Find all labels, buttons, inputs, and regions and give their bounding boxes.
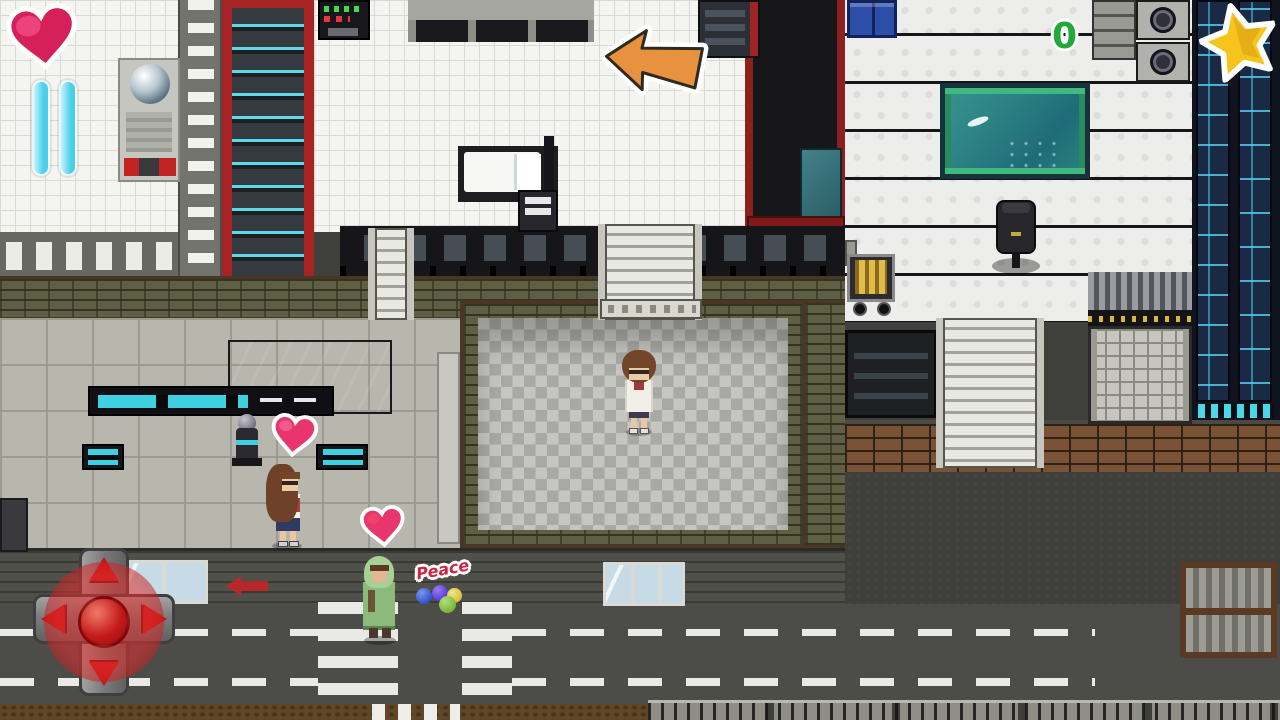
counter-indicator: 0 (1052, 16, 1077, 57)
crosswalk-south (372, 704, 460, 720)
nightstand (518, 190, 558, 232)
cabinet-stripes (88, 449, 118, 465)
hair-fringe (627, 362, 651, 368)
machine-red-edge (750, 2, 758, 56)
emblem-icon (1150, 7, 1176, 33)
pause-bar (32, 80, 50, 176)
machine-slots (705, 10, 745, 48)
machine-slot-band (340, 226, 845, 278)
cyan-cabinet (316, 444, 368, 470)
dark-slab (0, 498, 28, 552)
emblem-machines (1136, 0, 1190, 82)
graffiti-arrow (226, 576, 270, 596)
chair-headrest (1002, 203, 1030, 213)
game-viewport: Peace 0 (0, 0, 1280, 720)
panel-slot (328, 28, 358, 36)
door-mullion (631, 565, 635, 603)
balloon-blue (416, 588, 432, 604)
face (372, 570, 387, 582)
white-tick (294, 398, 316, 402)
hair-fringe (370, 565, 389, 571)
lane-dashes (512, 678, 1095, 686)
character-green-cloaked-figure[interactable] (358, 556, 402, 644)
mirror-sphere (130, 64, 170, 104)
counter-base (408, 20, 594, 42)
wooden-crate (1180, 562, 1277, 658)
hydrant-robot (230, 414, 264, 466)
pillow (514, 154, 541, 190)
staircase-small[interactable] (368, 228, 414, 320)
cyan-cabinet (82, 444, 124, 470)
ladder-column (178, 0, 222, 322)
lane-dashes (512, 629, 1095, 636)
drawer (525, 197, 551, 204)
crate-crossbar (1186, 608, 1271, 615)
door-mullion (658, 565, 662, 603)
emblem-icon (1150, 49, 1176, 75)
road (0, 604, 1280, 712)
bubbles (1005, 138, 1065, 168)
office-chair (988, 200, 1044, 276)
counter-surface (408, 0, 594, 22)
green-indicator-row (324, 6, 364, 12)
shoe (289, 541, 299, 547)
supply-cart (845, 240, 897, 314)
red-lights (124, 158, 176, 176)
graffiti-arrow-head (226, 576, 241, 596)
plaza-sign (600, 299, 702, 319)
server-rows (854, 339, 928, 409)
pause-button[interactable] (26, 76, 86, 180)
escalator-column (222, 0, 314, 296)
drawer (525, 208, 551, 215)
character-lab-coat-girl[interactable] (620, 350, 658, 438)
hint-arrow (597, 19, 710, 107)
grid-machine (1088, 326, 1192, 424)
cart-cargo (855, 260, 887, 294)
cart-wheel (853, 302, 867, 316)
cart-wheel (877, 302, 891, 316)
glasses (282, 481, 298, 485)
crosswalk (462, 602, 512, 712)
shoe (640, 428, 649, 434)
container-row (648, 700, 1280, 720)
server-machine (845, 330, 937, 418)
ladder-rungs (188, 0, 214, 322)
sign-ticks (608, 305, 696, 313)
aquarium (940, 83, 1090, 179)
blue-locker (847, 0, 897, 38)
discoball-machine (118, 58, 180, 182)
chair-clasp (1011, 232, 1021, 236)
health-heart-indicator (3, 0, 84, 75)
floating-heart (358, 504, 407, 550)
cabinet-stripes (323, 449, 363, 465)
slot-windows (346, 235, 839, 261)
graffiti-arrow-shaft (240, 581, 268, 591)
counter-table (408, 0, 594, 42)
character-long-hair-girl[interactable] (264, 460, 312, 550)
red-indicator-row (324, 16, 350, 22)
boot (369, 628, 378, 638)
shoe (629, 428, 638, 434)
staircase-east[interactable] (936, 318, 1044, 468)
shoe (278, 541, 288, 547)
brick-column-east-of-plaza (806, 300, 845, 548)
chair-leg (1012, 252, 1020, 268)
gray-slab (437, 352, 460, 544)
strap (368, 590, 375, 612)
brick-wall-south-east (845, 420, 1280, 474)
peace-sign: Peace (412, 558, 474, 616)
cyan-strip (98, 395, 248, 408)
joystick-knob[interactable] (78, 596, 130, 648)
side-machine (1092, 0, 1136, 60)
floating-heart (268, 412, 320, 461)
balloon-green (439, 596, 456, 613)
pipe-bank (1088, 272, 1192, 328)
machine-vent (126, 112, 172, 152)
virtual-joystick[interactable] (33, 548, 175, 696)
glasses (629, 370, 649, 374)
boot (382, 628, 391, 638)
white-tick (260, 398, 282, 402)
hair-fringe (280, 472, 300, 479)
peace-text: Peace (415, 556, 471, 584)
control-panel (318, 0, 370, 40)
escalator-belt (232, 8, 304, 288)
glass-panel (800, 148, 842, 218)
robot-ring (236, 440, 258, 445)
plaza-glass-door[interactable] (603, 562, 685, 606)
window-row (6, 242, 172, 270)
cyan-dash-row (1198, 404, 1274, 418)
fish (966, 114, 989, 128)
pause-bar (59, 80, 77, 176)
tech-wall-column (745, 0, 845, 232)
cyan-console (88, 386, 334, 416)
robot-base (232, 458, 262, 466)
